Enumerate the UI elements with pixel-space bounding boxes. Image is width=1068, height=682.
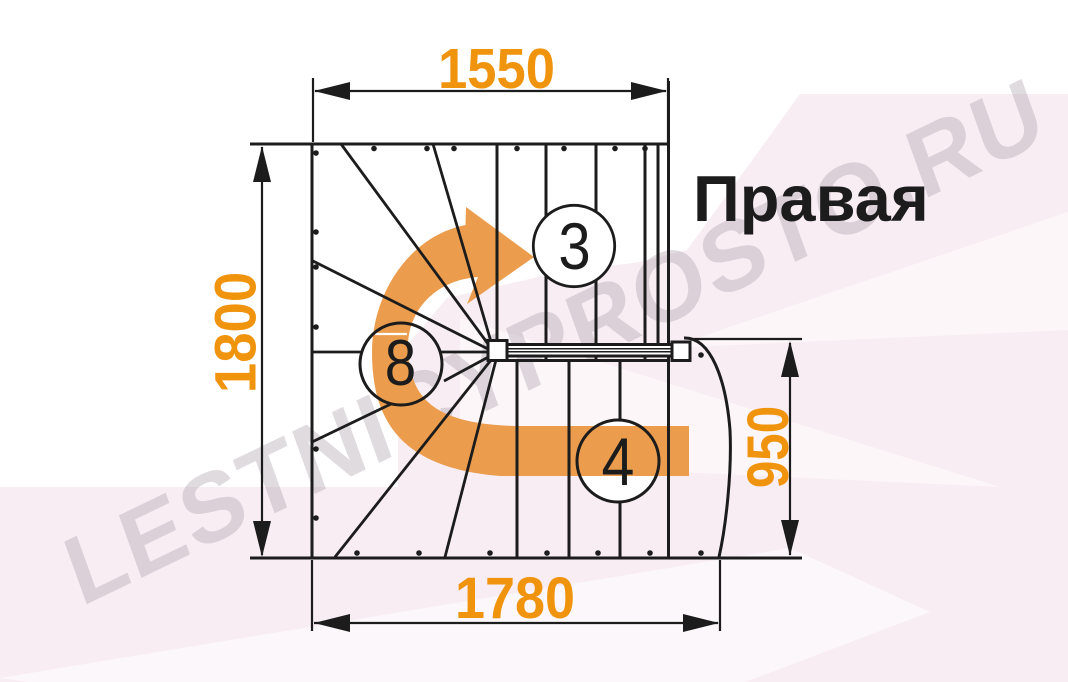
svg-text:1780: 1780 xyxy=(455,565,575,630)
svg-text:950: 950 xyxy=(736,406,801,488)
svg-text:1800: 1800 xyxy=(203,272,268,393)
svg-text:3: 3 xyxy=(558,211,590,284)
svg-text:4: 4 xyxy=(602,423,635,500)
svg-text:Правая: Правая xyxy=(693,162,929,235)
svg-text:1550: 1550 xyxy=(438,37,555,100)
svg-text:8: 8 xyxy=(385,326,416,399)
